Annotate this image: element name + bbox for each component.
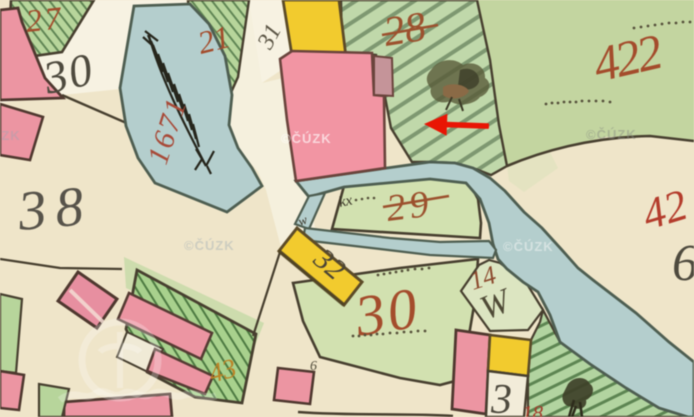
svg-text:38: 38: [15, 175, 95, 243]
svg-text:18: 18: [522, 401, 544, 417]
svg-text:3: 3: [490, 377, 512, 417]
svg-text:30: 30: [350, 275, 424, 349]
svg-text:©ČÚZK: ©ČÚZK: [0, 128, 21, 143]
svg-text:©ČÚZK: ©ČÚZK: [281, 131, 332, 146]
svg-text:©ČÚZK: ©ČÚZK: [503, 239, 554, 254]
svg-text:6: 6: [310, 359, 317, 374]
svg-text:©ČÚZK: ©ČÚZK: [586, 127, 637, 142]
svg-text:6: 6: [672, 235, 694, 292]
svg-text:©ČÚZK: ©ČÚZK: [184, 238, 235, 253]
svg-text:27: 27: [24, 0, 66, 39]
